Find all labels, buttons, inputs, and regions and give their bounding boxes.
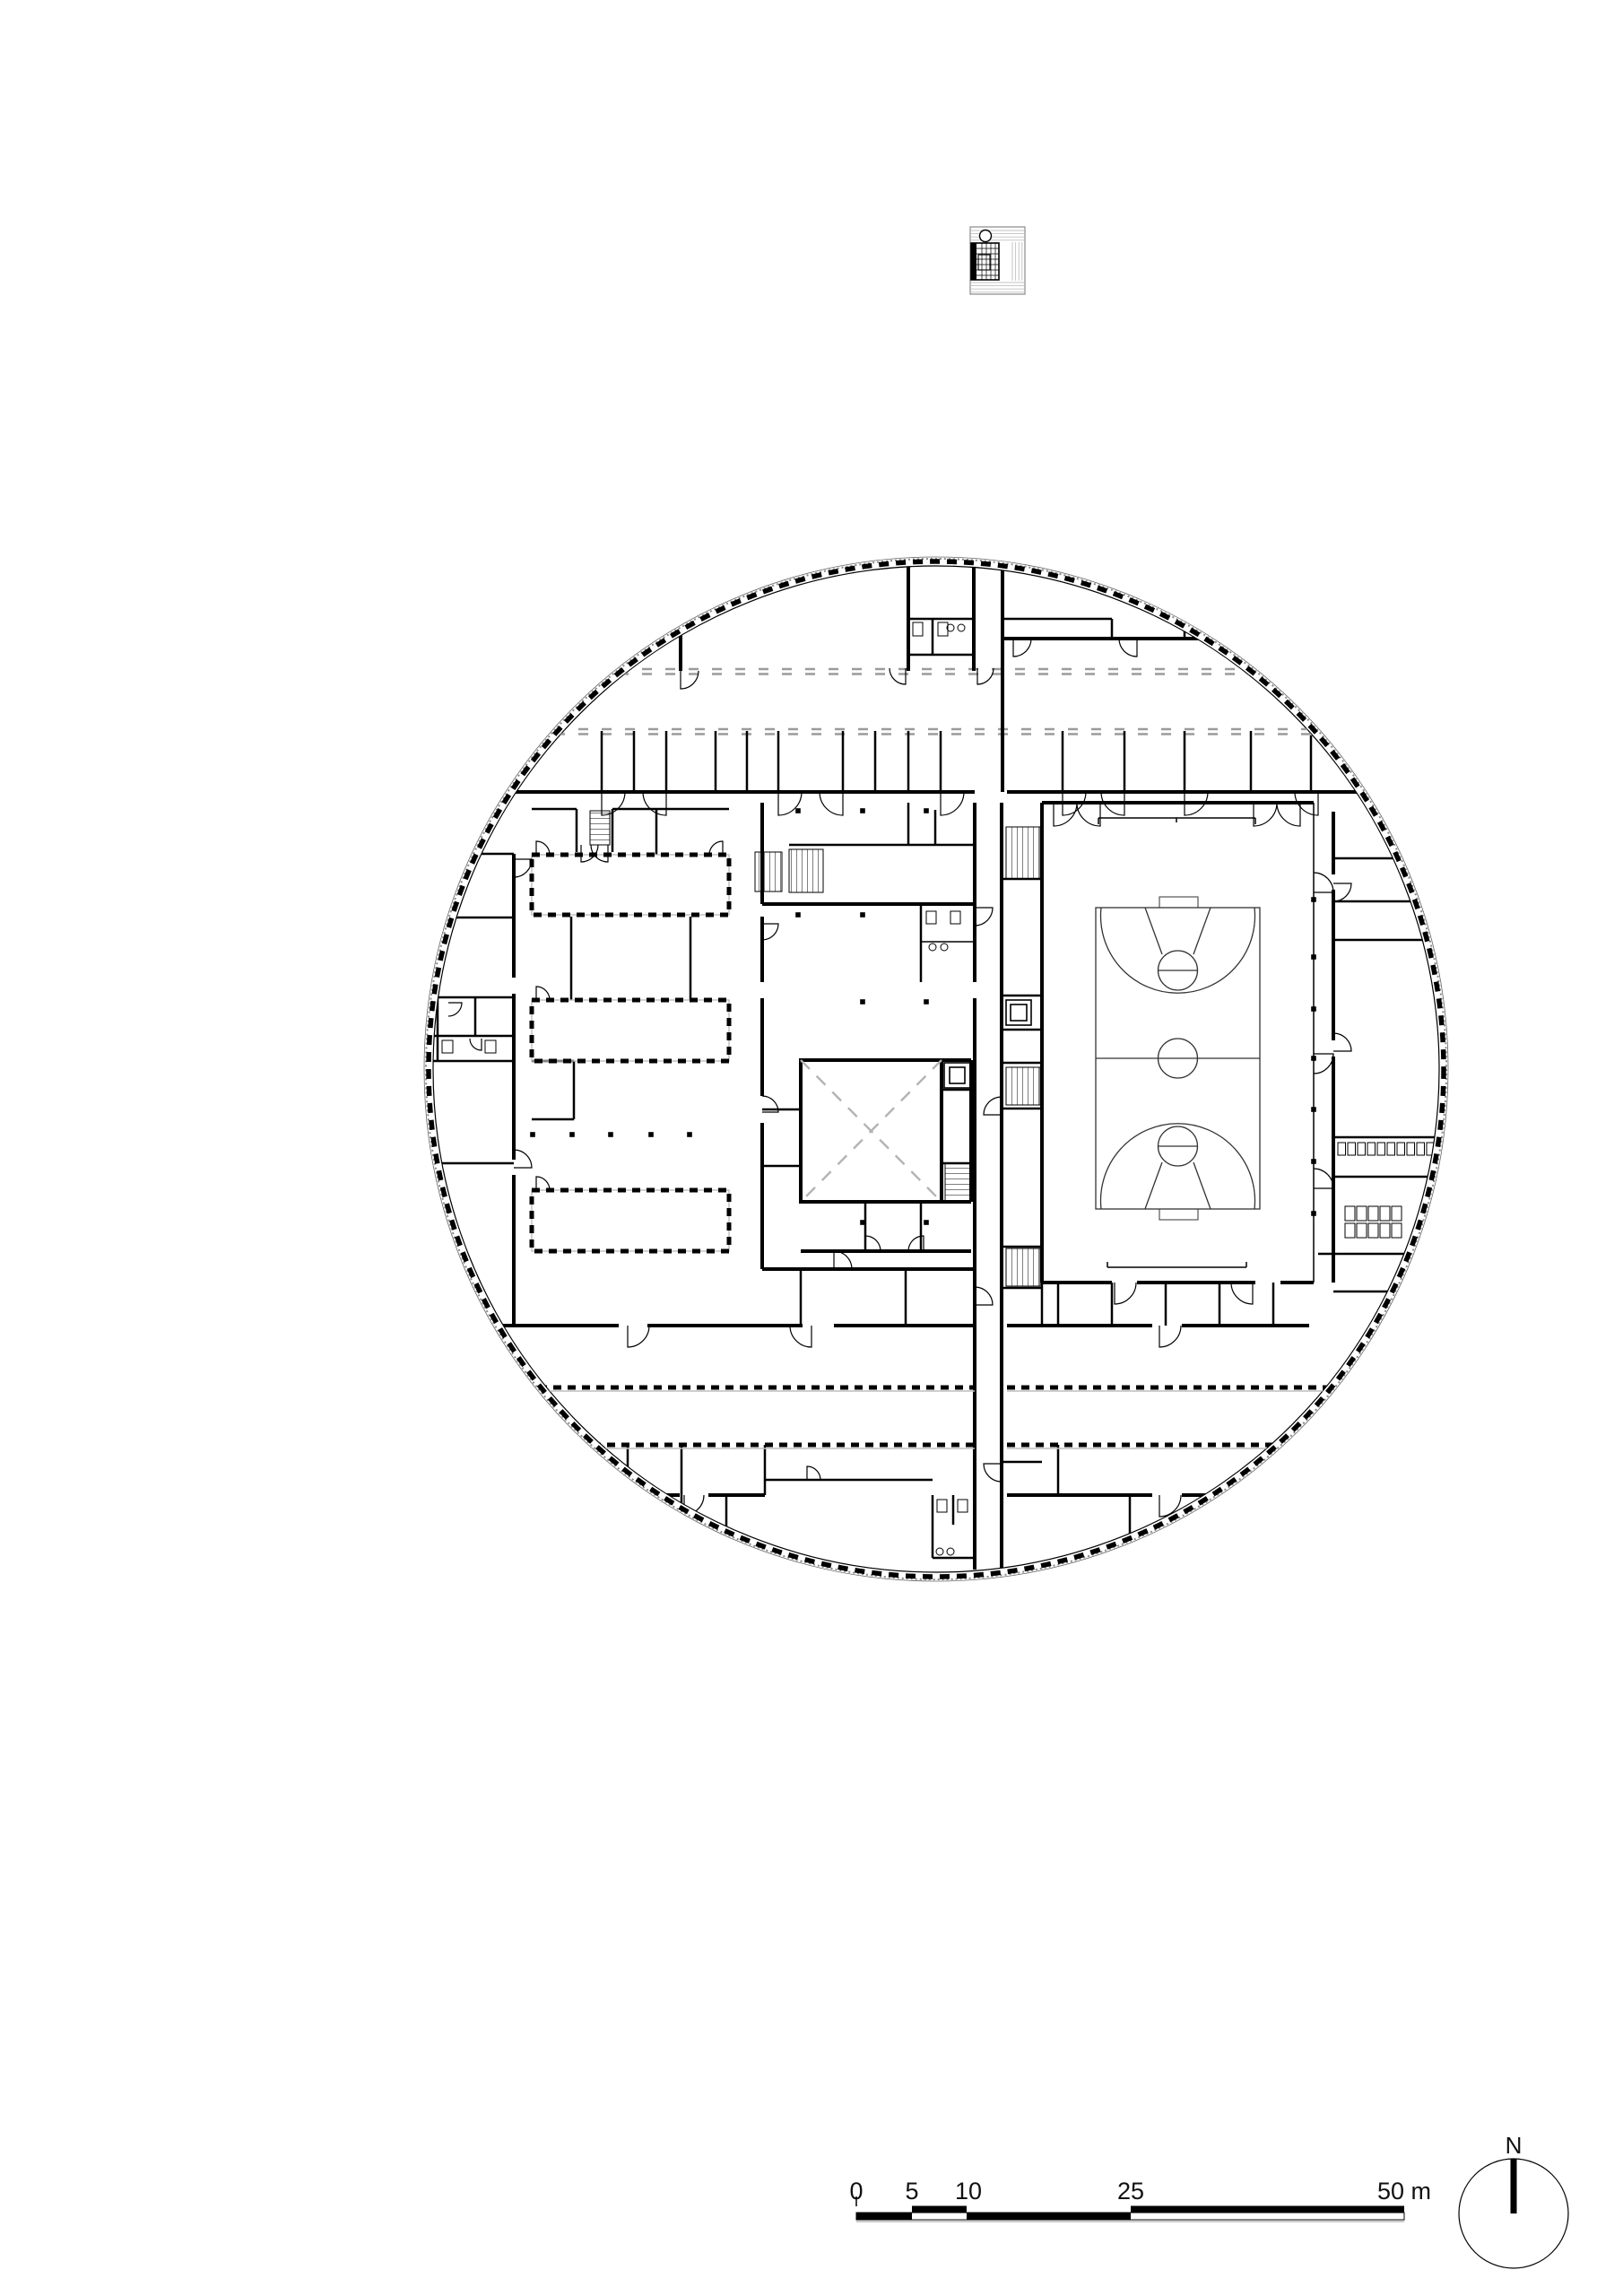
stair-icon bbox=[590, 811, 610, 845]
backboard-icon bbox=[1159, 897, 1198, 908]
door-swing-icon bbox=[1115, 1283, 1136, 1304]
scale-label-10: 10 bbox=[955, 2178, 982, 2205]
door-swing-icon bbox=[865, 1236, 881, 1251]
door-swing-icon bbox=[1159, 1326, 1181, 1347]
drawing-sheet: 0 5 10 25 50 m N bbox=[0, 0, 1623, 2296]
column-icon bbox=[860, 808, 865, 813]
stair-icon bbox=[1006, 1248, 1040, 1286]
door-swings bbox=[448, 639, 1351, 1517]
elevator-icon bbox=[944, 1063, 970, 1088]
scale-label-50m: 50 m bbox=[1377, 2178, 1431, 2205]
interior-partition-walls bbox=[428, 619, 1444, 1558]
scale-bar: 0 5 10 25 50 m bbox=[849, 2178, 1431, 2222]
north-label: N bbox=[1506, 2132, 1523, 2159]
floor-plan-drawing: 0 5 10 25 50 m N bbox=[0, 0, 1623, 2296]
elevator-icon bbox=[950, 1067, 965, 1083]
sanitary-fixtures bbox=[442, 622, 968, 1555]
column-icon bbox=[648, 1132, 654, 1137]
door-swing-icon bbox=[1231, 1283, 1253, 1304]
door-swing-icon bbox=[1119, 639, 1137, 657]
void-cross-icon bbox=[801, 1060, 942, 1202]
door-swing-icon bbox=[820, 792, 843, 815]
column-icon bbox=[1311, 897, 1316, 902]
column-icon bbox=[569, 1132, 575, 1137]
column-icon bbox=[860, 1220, 865, 1225]
north-arrow-needle-icon bbox=[1511, 2159, 1517, 2213]
door-swing-icon bbox=[1314, 873, 1333, 892]
door-swing-icon bbox=[1333, 883, 1351, 901]
column-icon bbox=[924, 999, 929, 1004]
door-swing-icon bbox=[975, 1287, 993, 1305]
door-swing-icon bbox=[1013, 639, 1031, 657]
dashed-gallery-corridor bbox=[539, 1387, 1333, 1448]
north-arrow: N bbox=[1459, 2132, 1568, 2268]
door-swing-icon bbox=[1254, 803, 1277, 826]
column-icon bbox=[1311, 1159, 1316, 1164]
door-swing-icon bbox=[762, 924, 778, 940]
scale-label-25: 25 bbox=[1117, 2178, 1144, 2205]
column-icon bbox=[1311, 1056, 1316, 1061]
site-key-plan bbox=[970, 227, 1025, 294]
door-swing-icon bbox=[834, 1251, 852, 1269]
door-swing-icon bbox=[448, 1003, 462, 1016]
door-swing-icon bbox=[1159, 1495, 1181, 1517]
structural-columns bbox=[530, 808, 1316, 1225]
interior-thin-lines bbox=[921, 803, 1314, 1283]
column-icon bbox=[795, 808, 801, 813]
door-swing-icon bbox=[1314, 1169, 1333, 1188]
door-swing-icon bbox=[514, 1150, 532, 1168]
door-swing-icon bbox=[807, 1466, 820, 1480]
column-icon bbox=[795, 912, 801, 918]
door-swing-icon bbox=[984, 1097, 1002, 1115]
door-swing-icon bbox=[1277, 803, 1300, 826]
interior-main-walls bbox=[498, 561, 1364, 1572]
door-swing-icon bbox=[975, 908, 993, 926]
door-swing-icon bbox=[1054, 803, 1077, 826]
elevator-icon bbox=[1011, 1004, 1027, 1021]
key-plan-round-building-icon bbox=[980, 230, 992, 242]
door-swing-icon bbox=[1243, 1495, 1263, 1515]
circular-building-plan bbox=[424, 557, 1448, 1581]
scale-bar-segments bbox=[856, 2206, 1404, 2222]
elevator-icon bbox=[1006, 1000, 1031, 1025]
roof-edge-dashed-lines bbox=[555, 669, 1317, 735]
column-icon bbox=[924, 1220, 929, 1225]
staircases bbox=[590, 811, 1040, 1286]
door-swing-icon bbox=[941, 792, 964, 815]
stair-icon bbox=[1006, 827, 1040, 879]
central-void bbox=[801, 1060, 942, 1202]
stair-icon bbox=[789, 849, 823, 892]
column-icon bbox=[924, 808, 929, 813]
door-swing-icon bbox=[977, 668, 994, 684]
door-swing-icon bbox=[1314, 1054, 1333, 1074]
column-icon bbox=[687, 1132, 692, 1137]
door-swing-icon bbox=[514, 859, 532, 877]
door-swing-icon bbox=[890, 668, 906, 684]
key-plan-dark-wing bbox=[971, 243, 976, 280]
door-swing-icon bbox=[643, 792, 666, 815]
column-icon bbox=[530, 1132, 535, 1137]
column-icon bbox=[1311, 1006, 1316, 1012]
stair-icon bbox=[755, 852, 782, 891]
stair-icon bbox=[1006, 1067, 1040, 1105]
door-swing-icon bbox=[1333, 1033, 1351, 1051]
dashed-projection-rooms bbox=[532, 855, 729, 1251]
basketball-court bbox=[1096, 897, 1260, 1220]
column-icon bbox=[860, 999, 865, 1004]
building-facade-circle bbox=[424, 557, 1448, 1581]
backboard-icon bbox=[1159, 1209, 1198, 1220]
door-swing-icon bbox=[628, 1326, 649, 1347]
column-icon bbox=[860, 912, 865, 918]
door-swing-icon bbox=[470, 1039, 482, 1050]
column-icon bbox=[1311, 1211, 1316, 1216]
scale-label-5: 5 bbox=[905, 2178, 918, 2205]
column-icon bbox=[1311, 1107, 1316, 1112]
door-swing-icon bbox=[984, 1464, 1002, 1482]
stair-icon bbox=[945, 1163, 970, 1202]
column-icon bbox=[608, 1132, 613, 1137]
column-icon bbox=[1311, 954, 1316, 960]
door-swing-icon bbox=[790, 1326, 811, 1347]
